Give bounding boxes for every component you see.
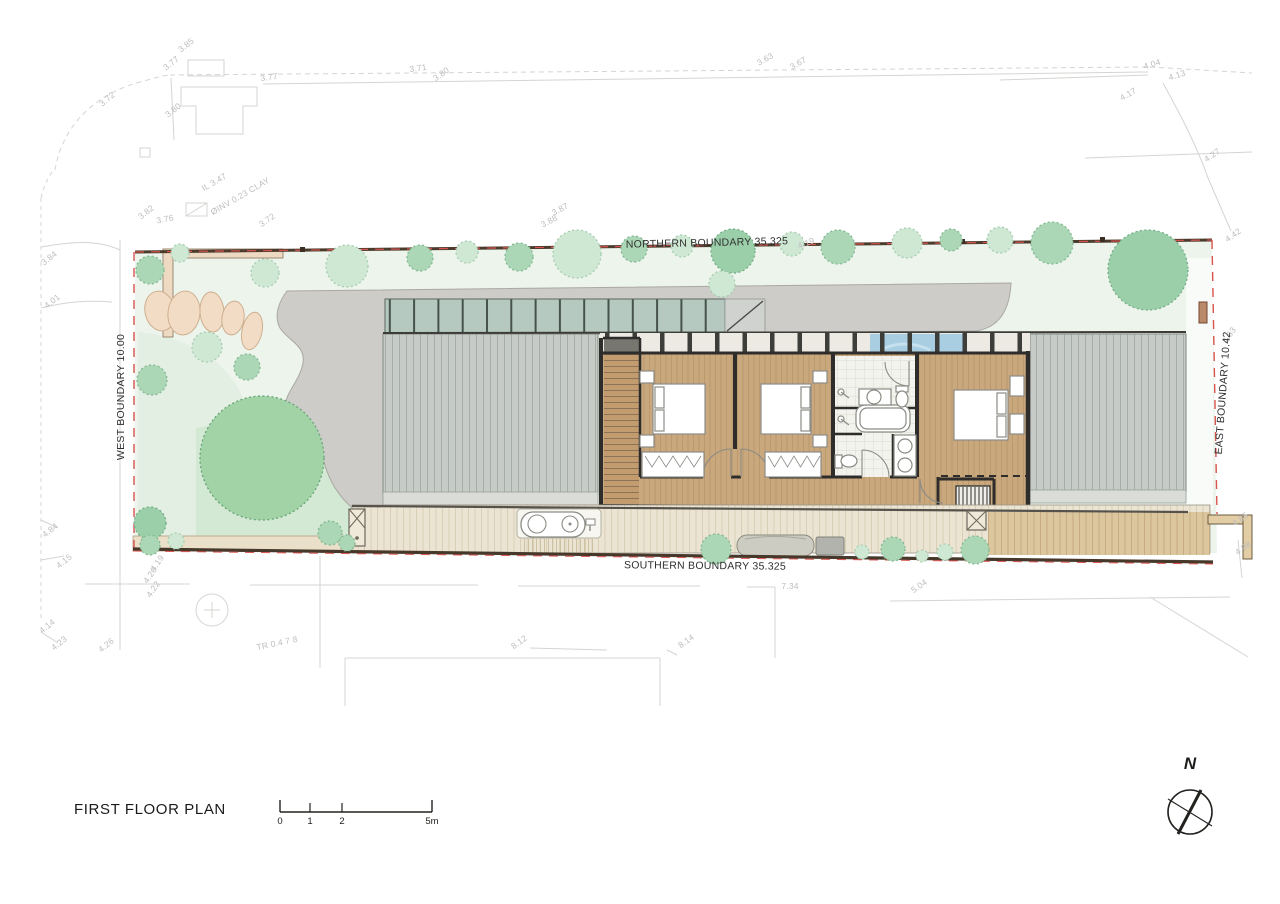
scale-tick-0: 0	[277, 816, 282, 827]
east-roof	[1030, 334, 1186, 492]
tree	[134, 507, 166, 539]
tree	[326, 245, 368, 287]
scale-tick-2: 2	[339, 816, 344, 827]
scale-bar	[280, 800, 432, 812]
tree	[961, 536, 989, 564]
clerestory-glazing	[385, 299, 725, 333]
tree	[140, 535, 160, 555]
drawing-title: FIRST FLOOR PLAN	[74, 801, 226, 818]
tree	[339, 535, 355, 551]
bench	[816, 537, 844, 555]
basin	[867, 390, 881, 404]
tree	[192, 332, 222, 362]
north-facade-columns	[600, 333, 1030, 353]
side-table	[640, 371, 654, 383]
tree	[821, 230, 855, 264]
tree	[168, 533, 184, 549]
tree	[251, 259, 279, 287]
tree	[171, 244, 189, 262]
north-letter: N	[1184, 754, 1196, 774]
tree	[136, 256, 164, 284]
tree	[855, 545, 869, 559]
ladder	[956, 486, 990, 506]
side-table	[813, 435, 827, 447]
tree	[234, 354, 260, 380]
floor-plan-canvas: 3.853.773.723.803.773.713.803.633.674.04…	[0, 0, 1280, 904]
stair	[604, 338, 639, 506]
deck	[349, 505, 1252, 559]
tree	[1031, 222, 1073, 264]
tree	[456, 241, 478, 263]
tree	[318, 521, 342, 545]
side-table	[1010, 414, 1024, 434]
side-table	[1010, 376, 1024, 396]
tree	[940, 229, 962, 251]
south-boundary-label: SOUTHERN BOUNDARY 35.325	[624, 559, 786, 572]
site-plan-drawing	[0, 0, 1280, 904]
tree	[987, 227, 1013, 253]
building-first-floor	[601, 338, 1029, 509]
tree	[200, 396, 324, 520]
tree	[137, 365, 167, 395]
tree	[709, 271, 735, 297]
side-table	[813, 371, 827, 383]
tree	[937, 544, 953, 560]
tree	[505, 243, 533, 271]
tree	[553, 230, 601, 278]
bath-tap	[586, 519, 595, 525]
scale-tick-3: 5m	[425, 816, 438, 827]
tree	[407, 245, 433, 271]
north-compass	[1168, 790, 1212, 834]
tree	[892, 228, 922, 258]
west-boundary-label: WEST BOUNDARY 10.00	[115, 334, 127, 460]
tree	[916, 550, 928, 562]
scale-tick-1: 1	[307, 816, 312, 827]
tree	[881, 537, 905, 561]
tree	[1108, 230, 1188, 310]
gate-post	[1199, 302, 1207, 323]
west-roof	[383, 334, 598, 494]
outdoor-bath	[521, 512, 585, 537]
side-table	[640, 435, 654, 447]
